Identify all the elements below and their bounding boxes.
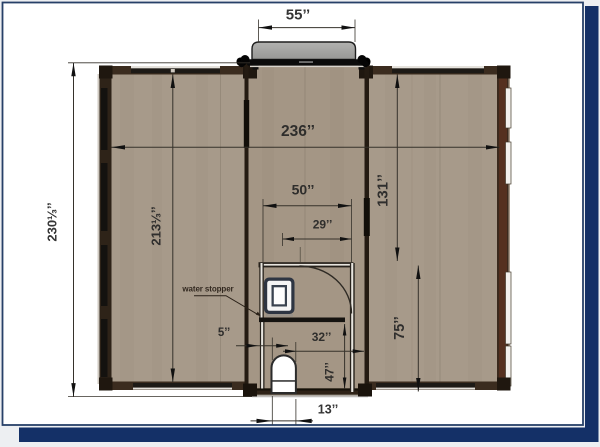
svg-text:50’’: 50’’ (292, 182, 315, 198)
svg-text:213⅓’’: 213⅓’’ (149, 206, 164, 245)
svg-text:75’’: 75’’ (392, 316, 408, 340)
svg-text:13’’: 13’’ (318, 403, 338, 417)
svg-text:55’’: 55’’ (286, 7, 310, 24)
svg-text:water stopper: water stopper (181, 284, 233, 293)
svg-text:230⅓’’: 230⅓’’ (45, 202, 60, 241)
svg-text:29’’: 29’’ (313, 218, 333, 232)
svg-text:32’’: 32’’ (312, 330, 332, 344)
svg-text:47’’: 47’’ (323, 362, 337, 382)
svg-text:236’’: 236’’ (281, 123, 315, 140)
svg-text:131’’: 131’’ (375, 174, 392, 207)
svg-text:5’’: 5’’ (218, 327, 230, 339)
